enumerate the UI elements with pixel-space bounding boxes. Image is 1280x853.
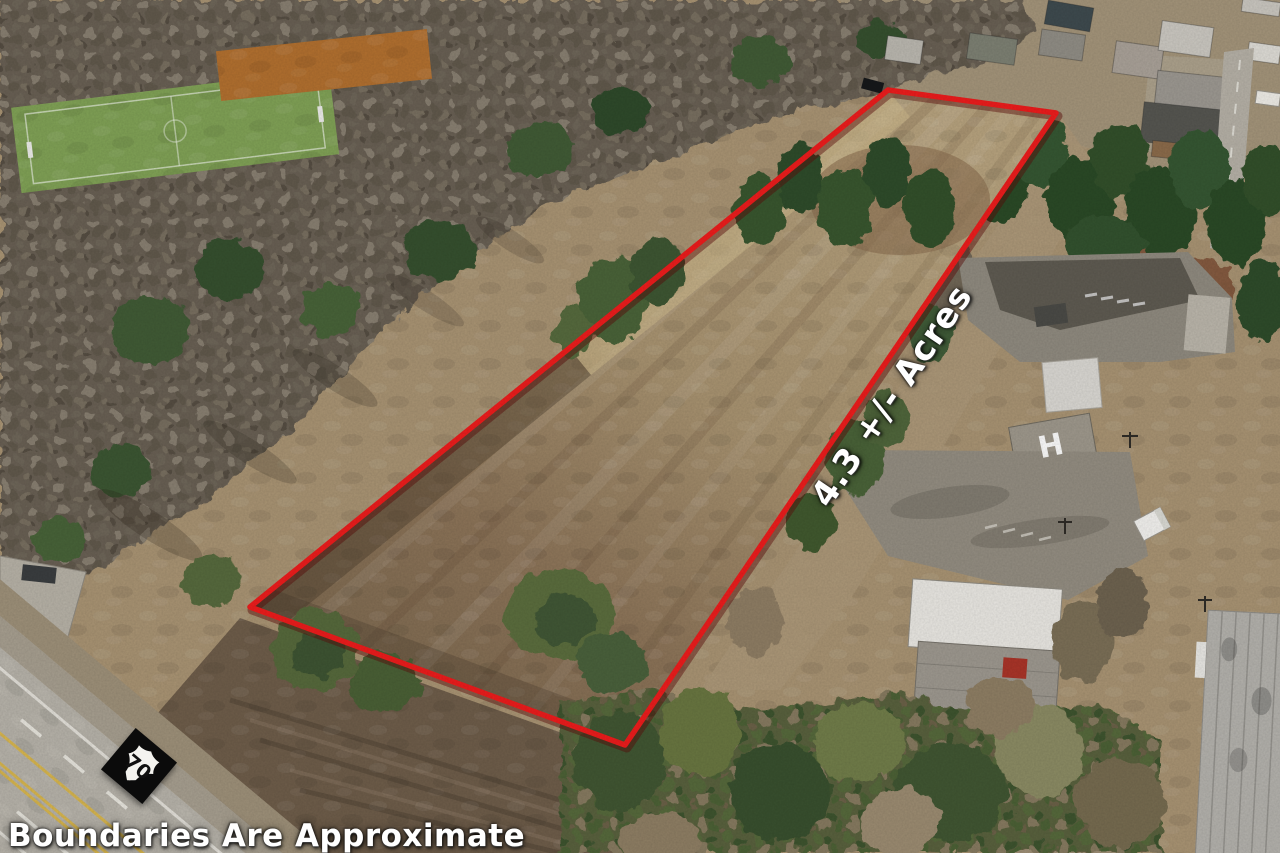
aerial-photo-artwork: H	[0, 0, 1280, 853]
photo-grain	[0, 0, 1280, 853]
aerial-photo: H 4.3 +/- Acres 70 Boundaries Are Approx…	[0, 0, 1280, 853]
disclaimer-text: Boundaries Are Approximate	[8, 818, 525, 853]
